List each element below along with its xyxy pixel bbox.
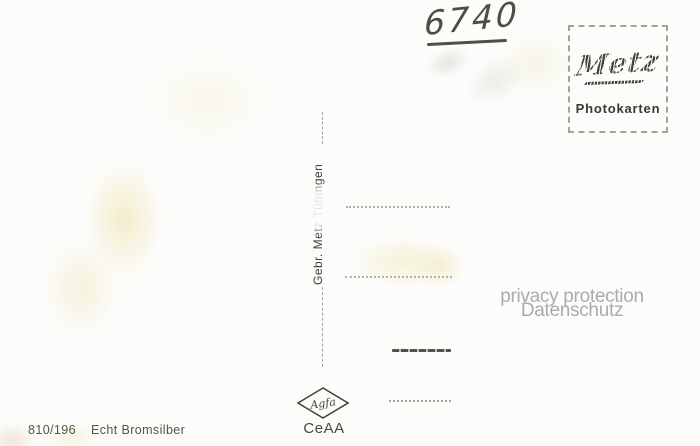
paper-stain	[414, 246, 466, 288]
paper-stain	[45, 238, 117, 338]
address-line	[345, 276, 452, 278]
divider-line-top	[322, 112, 323, 144]
address-line	[346, 206, 450, 208]
divider-line-bottom	[322, 287, 323, 367]
publisher-imprint-text: Gebr. Metz Tübingen	[311, 164, 325, 285]
agfa-paper-mark: CeAA	[300, 420, 348, 437]
handwritten-number-text: 6740	[424, 0, 521, 43]
address-line-dark	[392, 349, 451, 352]
address-line	[389, 400, 451, 402]
paper-stain	[85, 160, 163, 278]
agfa-logo-text: Agfa	[308, 395, 336, 412]
agfa-diamond-logo: Agfa	[296, 385, 350, 421]
postcard-back: 6740 Metz Photokarten Gebr. Metz Tübinge…	[0, 0, 700, 446]
metz-logo-text: Metz	[574, 46, 662, 82]
metz-logo: Metz	[577, 49, 659, 91]
stamp-box-caption: Photokarten	[576, 101, 661, 116]
stamp-box: Metz Photokarten	[568, 25, 668, 133]
paper-stain	[350, 236, 458, 288]
publisher-imprint: Gebr. Metz Tübingen	[310, 141, 326, 285]
metz-logo-underline	[584, 80, 644, 85]
footer-paper-label: Echt Bromsilber	[91, 423, 185, 437]
pencil-smudge	[421, 43, 475, 84]
paper-stain	[150, 58, 265, 143]
footer-imprint: 810/196 Echt Bromsilber	[28, 423, 185, 437]
privacy-watermark: privacy protection Datenschutz	[486, 290, 658, 318]
pencil-smudge	[456, 45, 534, 117]
footer-code: 810/196	[28, 423, 76, 437]
